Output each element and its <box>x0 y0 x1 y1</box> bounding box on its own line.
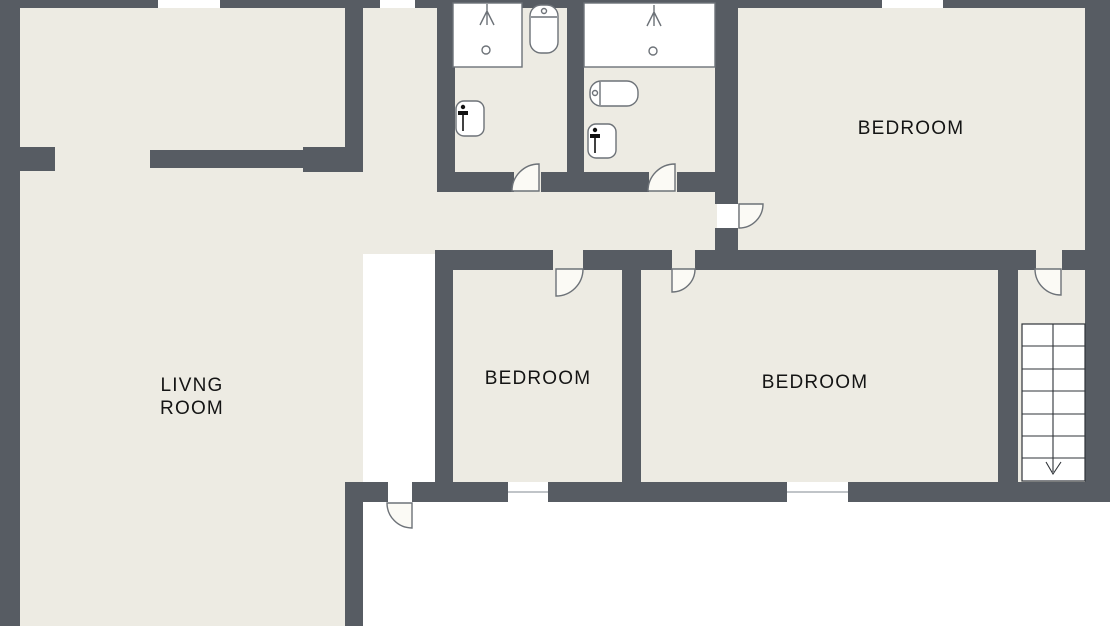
sink-icon <box>456 101 484 136</box>
wall-segment <box>541 172 649 192</box>
wall-segment <box>20 147 55 171</box>
window <box>158 0 220 8</box>
window <box>787 482 848 502</box>
wall-segment <box>848 482 1110 502</box>
floor-bedroom-right <box>641 252 998 482</box>
wall-segment <box>622 252 641 482</box>
wall-segment <box>345 0 363 150</box>
staircase <box>1022 324 1085 481</box>
floor-plan: BEDROOM BEDROOM BEDROOM LIVNG ROOM <box>0 0 1110 626</box>
wall-segment <box>715 0 738 204</box>
floor-living-room <box>20 147 363 484</box>
wall-segment <box>677 172 715 192</box>
door-lower-left <box>387 503 412 528</box>
wall-segment <box>437 172 514 192</box>
floor-bedroom-middle <box>453 252 622 482</box>
shower-icon <box>453 3 522 67</box>
label-living-room-line1: LIVNG <box>160 375 223 396</box>
wall-segment <box>303 147 363 172</box>
wall-segment <box>437 0 455 192</box>
wall-segment <box>150 150 303 168</box>
wall-segment <box>998 252 1018 502</box>
label-living-room-line2: ROOM <box>160 398 224 419</box>
floor-hallway <box>437 190 717 252</box>
floors <box>20 8 1085 626</box>
shower-icon <box>584 3 715 67</box>
floor-plan-canvas: BEDROOM BEDROOM BEDROOM LIVNG ROOM <box>0 0 1110 626</box>
sink-icon <box>588 124 616 158</box>
floor-top-left-room <box>20 8 345 149</box>
wall-segment <box>412 482 508 502</box>
toilet-icon <box>530 5 558 53</box>
window <box>882 0 943 8</box>
wall-segment <box>0 0 20 626</box>
wall-segment <box>1062 250 1110 270</box>
window <box>508 482 548 502</box>
wall-segment <box>548 482 787 502</box>
floor-lower-left-area <box>20 482 345 626</box>
floor-corridor <box>363 8 437 254</box>
wall-segment <box>695 250 1036 270</box>
label-bedroom-middle: BEDROOM <box>485 368 592 389</box>
wall-segment <box>435 252 453 482</box>
label-bedroom-right: BEDROOM <box>762 372 869 393</box>
label-bedroom-top-right: BEDROOM <box>858 118 965 139</box>
wall-segment <box>567 0 584 192</box>
toilet-icon <box>590 81 638 106</box>
window <box>380 0 415 8</box>
wall-segment <box>345 482 363 626</box>
